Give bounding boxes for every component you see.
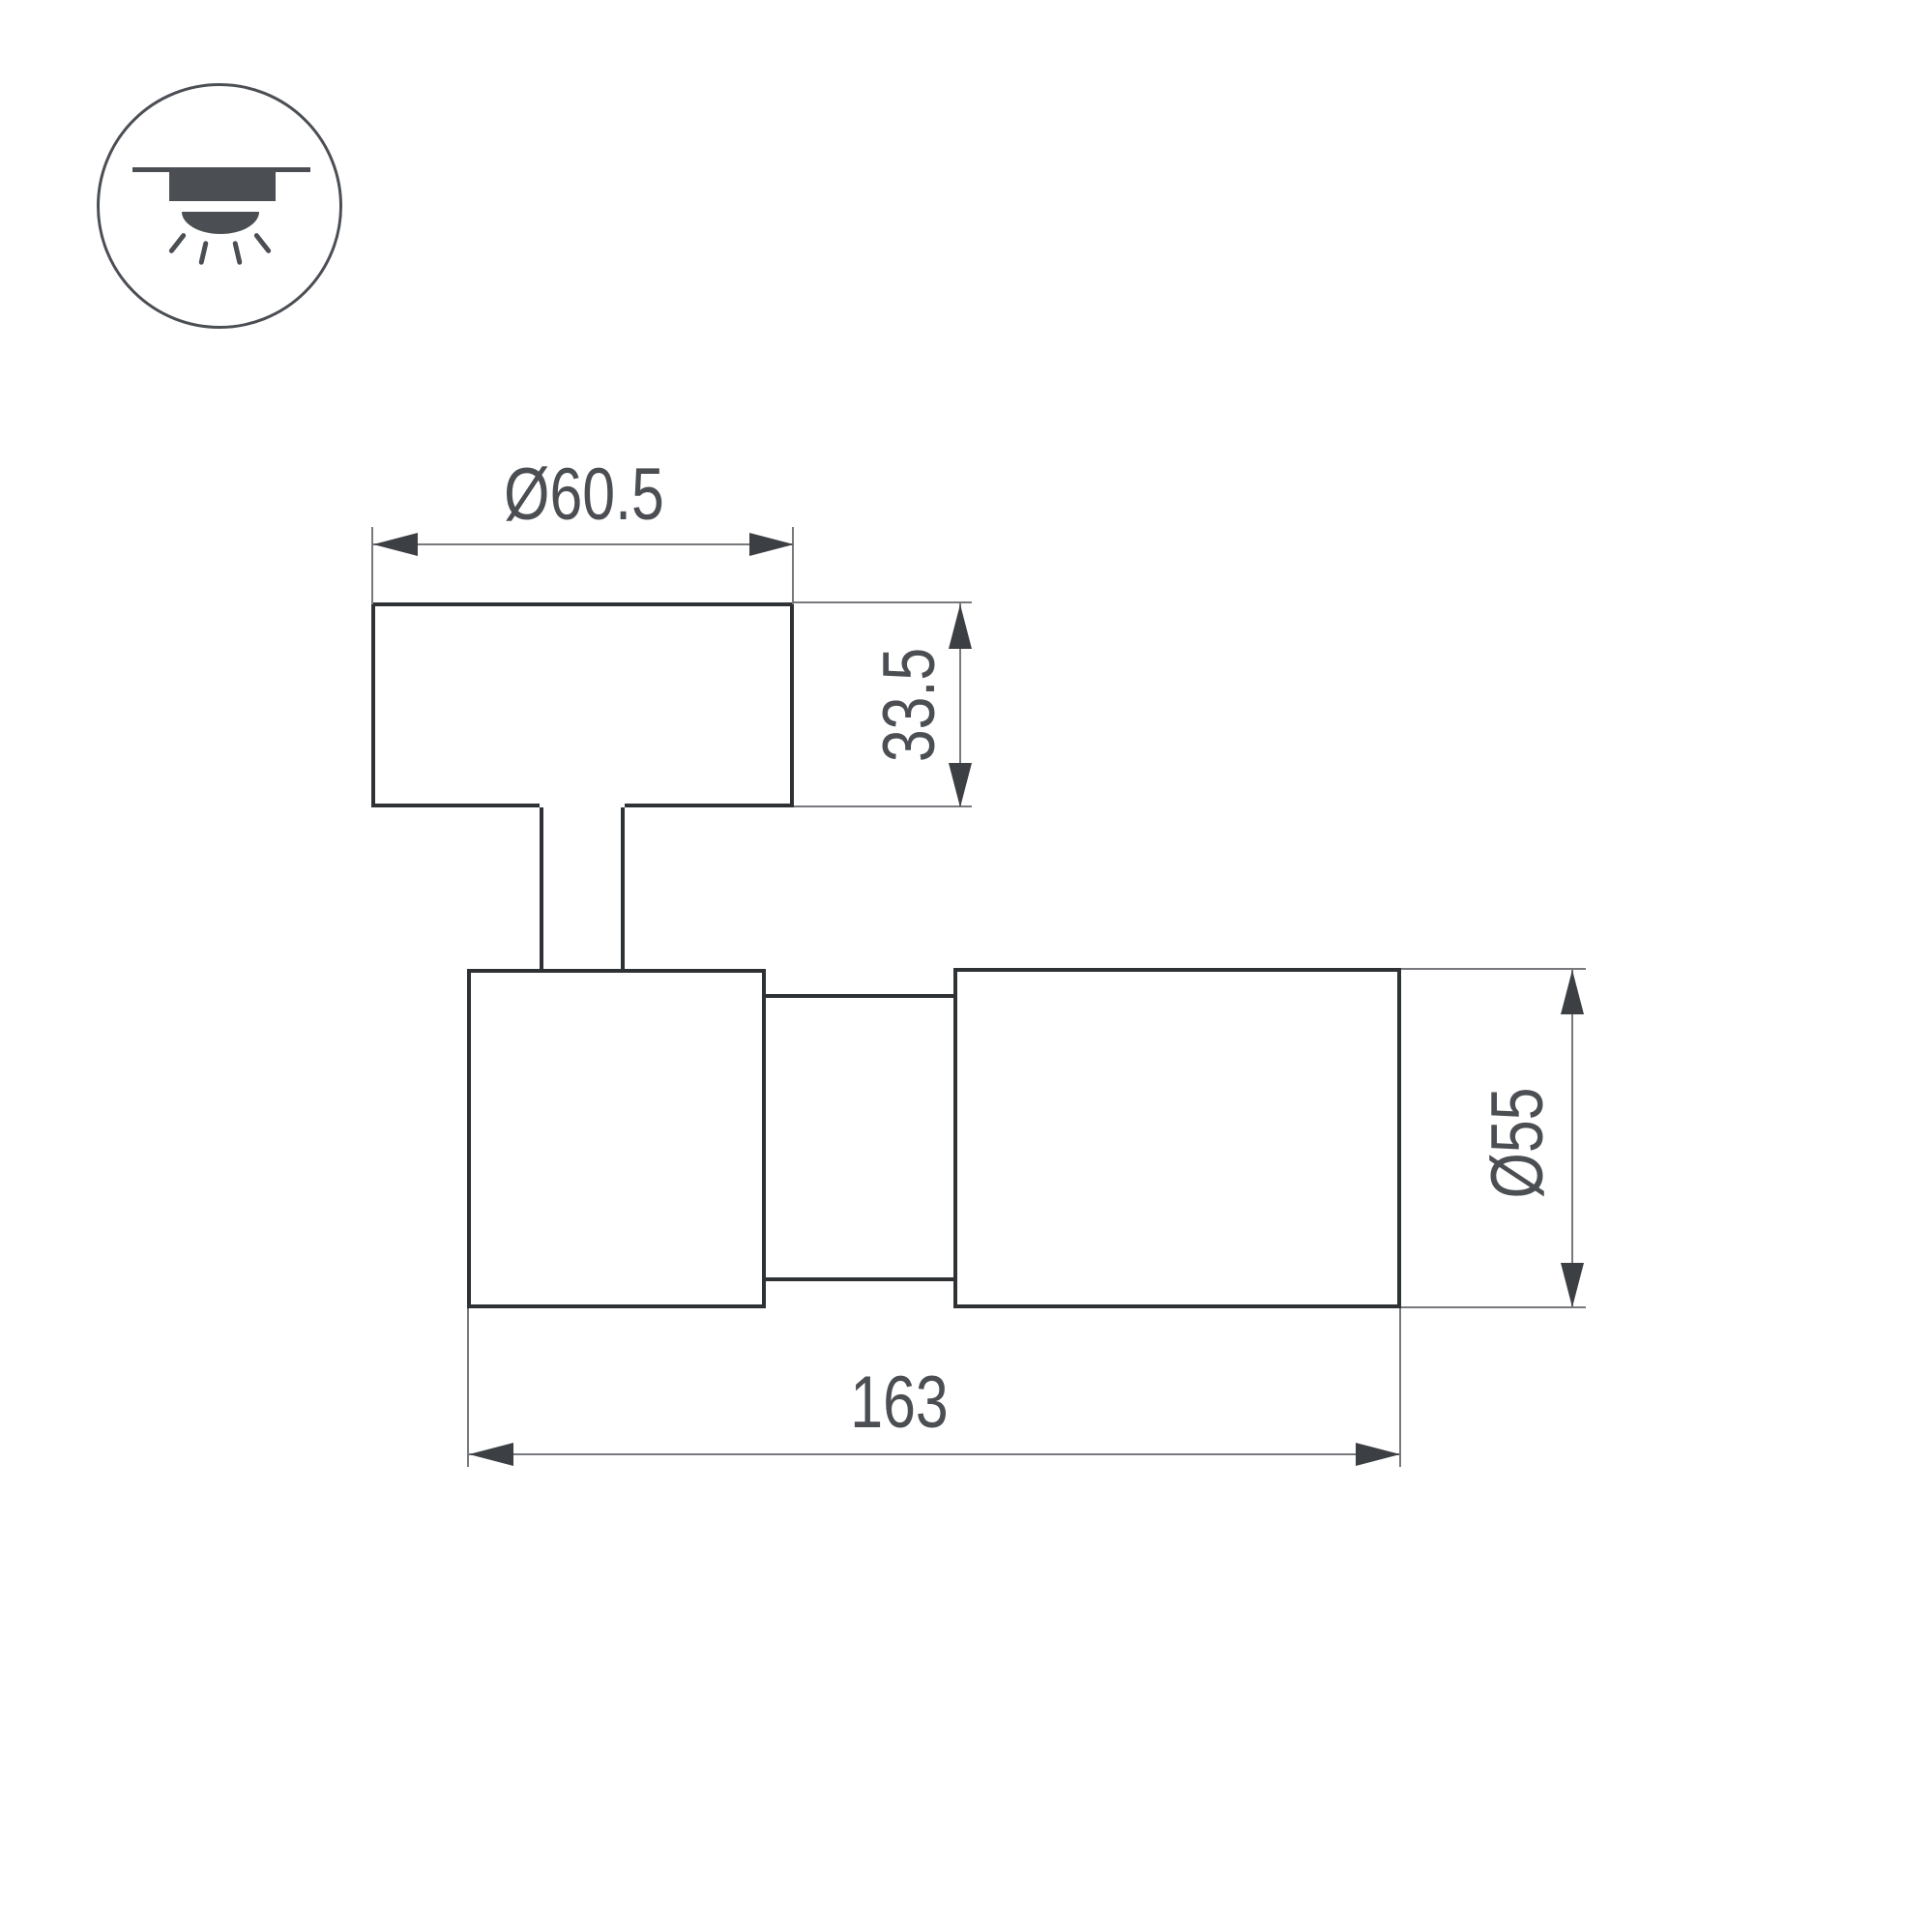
dimension-line [373, 543, 792, 545]
stem-right-line [621, 807, 625, 969]
extension-line-bottom [794, 805, 972, 807]
mount-base-bottom-edge-right [625, 804, 794, 807]
dimension-label-top-diameter: Ø60.5 [504, 458, 664, 532]
arrowhead-left-icon [373, 533, 418, 556]
dimension-label-overall-length: 163 [850, 1366, 948, 1440]
body-cylinder-outline [953, 968, 1401, 1308]
lamp-head-outline [467, 969, 766, 1308]
technical-drawing-canvas: Ø60.5 33.5 Ø55 163 [0, 0, 1932, 1932]
extension-line-bottom [1401, 1306, 1586, 1308]
arrowhead-down-icon [1561, 1263, 1584, 1307]
dimension-line [1571, 970, 1573, 1307]
dimension-line [469, 1453, 1400, 1455]
arrowhead-up-icon [949, 604, 972, 649]
dimension-label-body-diameter: Ø55 [1481, 1088, 1555, 1199]
mount-base-bottom-edge-left [371, 804, 540, 807]
arrowhead-right-icon [1356, 1443, 1400, 1466]
icon-fixture-body [169, 171, 276, 201]
mount-base-right-edge [790, 602, 794, 807]
extension-line-top [1401, 968, 1586, 970]
mount-base-top-edge [371, 602, 794, 606]
mount-base-left-edge [371, 602, 375, 807]
arrowhead-up-icon [1561, 970, 1584, 1014]
dimension-label-base-height: 33.5 [873, 648, 947, 762]
extension-line-top [794, 601, 972, 603]
arrowhead-left-icon [469, 1443, 513, 1466]
icon-circle-border [97, 83, 342, 329]
arrowhead-down-icon [949, 763, 972, 807]
stem-left-line [540, 807, 543, 969]
arrowhead-right-icon [749, 533, 794, 556]
swivel-connector-outline [766, 994, 953, 1281]
